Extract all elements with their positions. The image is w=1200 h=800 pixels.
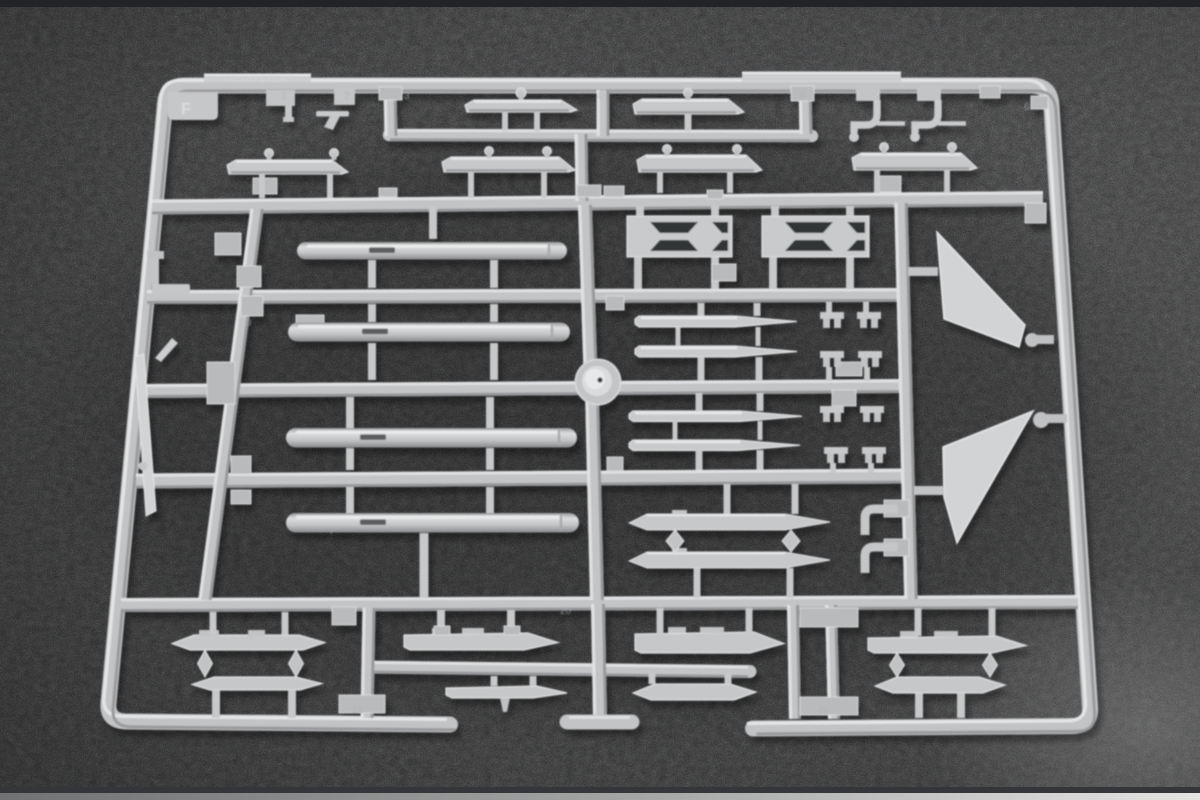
svg-text:9: 9	[246, 318, 252, 329]
svg-text:5: 5	[800, 91, 806, 102]
svg-text:F: F	[181, 101, 191, 118]
svg-text:26: 26	[818, 705, 830, 716]
svg-text:7: 7	[329, 526, 335, 537]
svg-text:TRUMPETER: TRUMPETER	[224, 75, 287, 84]
svg-text:20: 20	[560, 606, 572, 617]
svg-text:1: 1	[281, 91, 287, 102]
svg-text:2: 2	[344, 91, 350, 102]
svg-text:21: 21	[352, 705, 364, 716]
svg-text:4: 4	[596, 91, 602, 102]
svg-text:3: 3	[404, 91, 410, 102]
svg-text:6: 6	[1024, 102, 1030, 113]
